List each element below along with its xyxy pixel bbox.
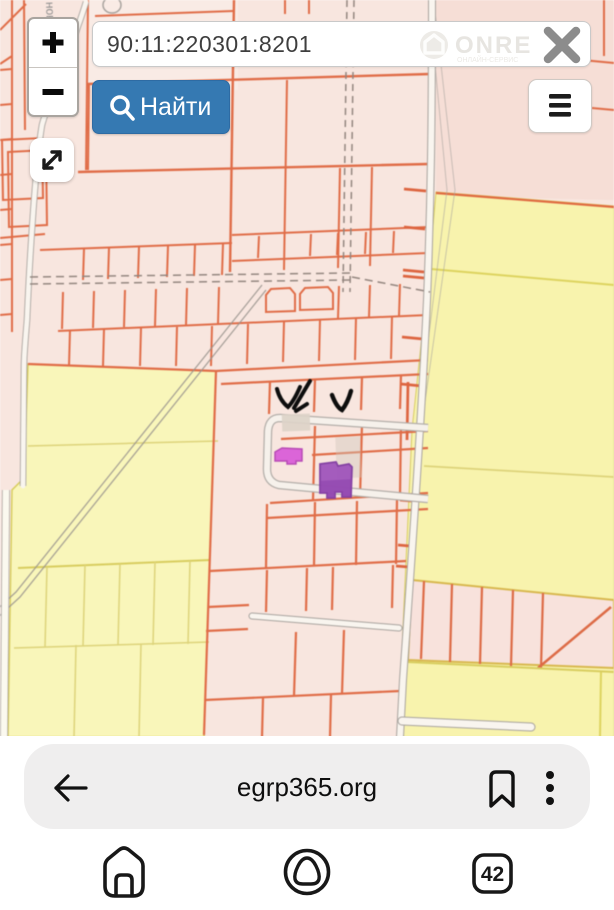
svg-text:42: 42: [481, 863, 504, 886]
svg-text:ONRE: ONRE: [455, 32, 532, 59]
svg-text:ОНЛАЙН-СЕРВИС: ОНЛАЙН-СЕРВИС: [457, 55, 518, 64]
